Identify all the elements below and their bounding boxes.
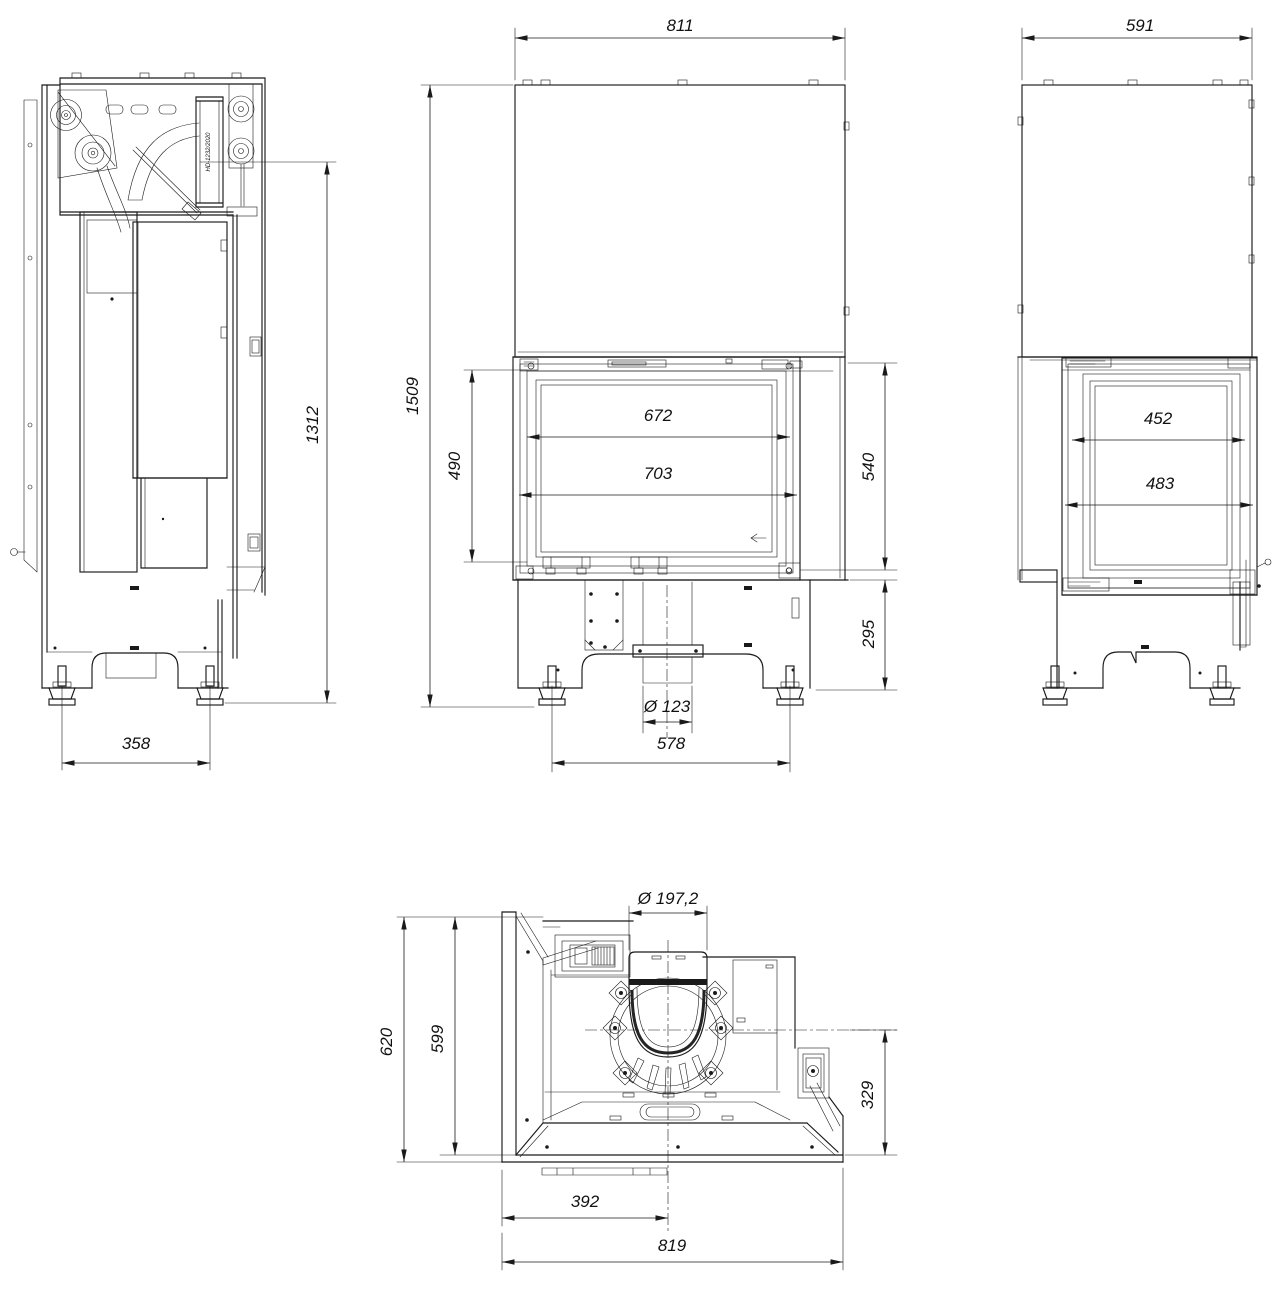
dim-right-glass-width-inner: 452 xyxy=(1144,409,1173,428)
dim-front-feet-spacing: 578 xyxy=(657,734,686,753)
pulley-left-upper xyxy=(51,100,82,131)
dim-front-glass-width-inner: 672 xyxy=(644,406,673,425)
dim-front-base-height: 295 xyxy=(859,619,878,649)
right-hood-tabs xyxy=(1018,80,1254,313)
dim-top-flue-side-offset: 392 xyxy=(571,1192,600,1211)
door-hinge-assembly xyxy=(543,935,630,977)
dim-mechanism-height: 1312 xyxy=(303,406,322,444)
dim-front-glass-height: 490 xyxy=(445,451,464,480)
flue-channel-column xyxy=(585,580,623,650)
dim-top-overall-width: 819 xyxy=(658,1236,687,1255)
right-view-feet xyxy=(1043,666,1234,705)
pulley-left-lower xyxy=(75,135,111,171)
technical-drawing-page: HD-1232/2020 xyxy=(0,0,1280,1297)
dim-front-glass-width-outer: 703 xyxy=(644,464,673,483)
door-latch-assembly xyxy=(798,1048,840,1131)
door-top-details xyxy=(520,359,802,370)
base-bottom-tabs xyxy=(542,1168,667,1175)
duct-part-number-label: HD-1232/2020 xyxy=(206,132,212,172)
flange-spokes xyxy=(629,1055,706,1094)
dim-right-glass-width-outer: 483 xyxy=(1146,474,1175,493)
glass-arrow-mark xyxy=(751,534,766,542)
front-view: 811 1509 490 672 703 540 295 Ø 123 578 xyxy=(403,16,897,772)
dim-right-overall-depth: 591 xyxy=(1126,16,1154,35)
dim-top-body-depth: 599 xyxy=(428,1024,447,1053)
dim-top-flue-rear-offset: 329 xyxy=(858,1080,877,1109)
dim-top-overall-depth: 620 xyxy=(377,1027,396,1056)
bottom-air-inlet-oval xyxy=(640,1104,700,1120)
top-mount-tabs xyxy=(72,73,241,78)
vent-slots xyxy=(106,105,176,114)
right-side-view: 591 452 483 xyxy=(1018,16,1271,705)
floor-slots xyxy=(610,1093,733,1120)
dim-front-overall-width: 811 xyxy=(666,16,693,35)
dim-left-feet-spacing: 358 xyxy=(122,734,151,753)
dim-front-air-inlet-diameter: Ø 123 xyxy=(643,697,691,716)
pulley-right-upper xyxy=(228,96,254,122)
top-plan-view: Ø 197,2 620 599 329 392 819 xyxy=(377,889,900,1270)
fireplace-dimension-drawing: HD-1232/2020 xyxy=(0,0,1280,1297)
dim-front-firebox-height: 540 xyxy=(859,452,878,481)
dim-top-flue-diameter: Ø 197,2 xyxy=(637,889,699,908)
pulley-right-lower xyxy=(228,138,254,164)
hood-tabs xyxy=(523,80,849,315)
left-side-view: HD-1232/2020 xyxy=(11,73,337,770)
left-view-feet xyxy=(49,666,223,770)
dim-front-overall-height: 1509 xyxy=(403,377,422,415)
door-bottom-latches xyxy=(543,557,667,574)
